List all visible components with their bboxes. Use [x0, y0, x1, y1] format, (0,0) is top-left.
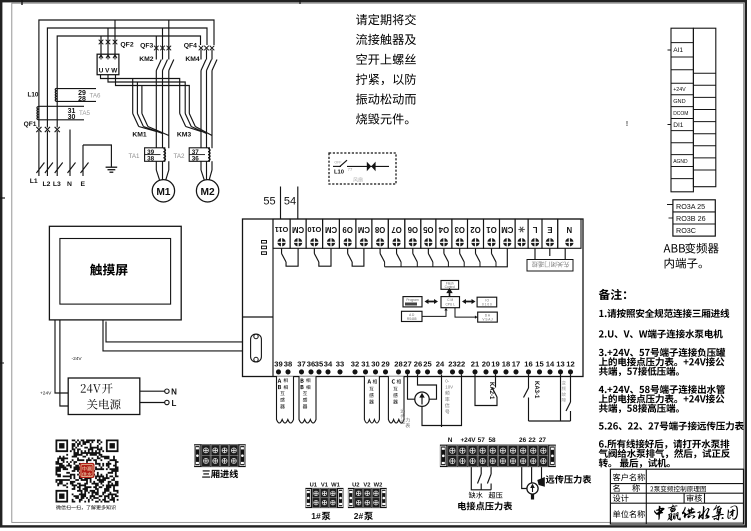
svg-text:W2: W2	[374, 482, 383, 488]
svg-text:+24V: +24V	[40, 391, 52, 397]
svg-text:1#: 1#	[311, 511, 321, 521]
svg-text:L10: L10	[334, 170, 344, 176]
svg-text:CM: CM	[325, 225, 337, 234]
svg-text:W1: W1	[331, 482, 340, 488]
svg-text:31: 31	[361, 360, 370, 369]
svg-text:27: 27	[403, 360, 411, 369]
svg-text:54: 54	[284, 196, 296, 208]
svg-text:25: 25	[423, 360, 432, 369]
svg-text:O9: O9	[342, 225, 353, 234]
svg-text:L: L	[172, 399, 177, 408]
svg-text:DI1: DI1	[673, 122, 684, 129]
svg-text:O7: O7	[391, 225, 401, 234]
svg-text:13: 13	[556, 360, 564, 369]
svg-text:35: 35	[315, 360, 324, 369]
svg-text:E: E	[81, 181, 86, 188]
svg-text:TA6: TA6	[90, 93, 101, 100]
svg-text:U2: U2	[352, 482, 359, 488]
svg-text:V1: V1	[321, 482, 329, 488]
svg-text:TA2: TA2	[174, 153, 185, 160]
svg-text:26: 26	[414, 360, 422, 369]
svg-text:Control: Control	[445, 285, 456, 289]
svg-text:V2: V2	[363, 482, 370, 488]
svg-text:CM: CM	[358, 225, 370, 234]
svg-text:KM3: KM3	[177, 132, 192, 139]
svg-text:U1: U1	[310, 482, 318, 488]
svg-text:KM4: KM4	[185, 56, 200, 63]
svg-text:19: 19	[491, 360, 499, 369]
svg-text:RO3A 25: RO3A 25	[676, 202, 705, 211]
svg-text:RO3B 26: RO3B 26	[676, 214, 706, 223]
svg-text:10V: 10V	[445, 385, 453, 390]
svg-text:M1: M1	[156, 187, 170, 198]
svg-text:U V W: U V W	[99, 68, 118, 75]
svg-text:M2: M2	[201, 187, 215, 198]
svg-text:37: 37	[297, 360, 305, 369]
svg-text:22: 22	[529, 437, 537, 444]
svg-text:30: 30	[68, 114, 76, 121]
svg-text:17: 17	[512, 360, 520, 369]
svg-text:L: L	[532, 225, 537, 234]
svg-text:O1: O1	[486, 225, 497, 234]
svg-text:QF2: QF2	[120, 42, 133, 49]
svg-text:57: 57	[478, 437, 486, 444]
svg-text:KA2-1: KA2-1	[488, 382, 494, 400]
svg-text:L1: L1	[30, 178, 38, 185]
svg-text:CM: CM	[292, 225, 304, 234]
svg-text:AGND: AGND	[673, 159, 688, 165]
svg-text:-24V: -24V	[72, 356, 83, 362]
svg-text:32: 32	[351, 360, 359, 369]
svg-text:DCOM: DCOM	[673, 111, 688, 117]
svg-text:0-: 0-	[445, 379, 449, 384]
svg-text:O11: O11	[275, 225, 288, 234]
svg-text:O8: O8	[374, 225, 385, 234]
svg-text:28: 28	[394, 360, 402, 369]
svg-text:L2: L2	[43, 181, 51, 188]
svg-text:2#: 2#	[354, 511, 364, 521]
svg-text:12: 12	[566, 360, 574, 369]
svg-text:KM2: KM2	[139, 56, 154, 63]
svg-text:CM: CM	[501, 225, 513, 234]
svg-text:34: 34	[324, 360, 333, 369]
svg-text:30: 30	[371, 360, 379, 369]
svg-text:V S A J: V S A J	[482, 318, 493, 322]
svg-text:L10: L10	[28, 92, 39, 99]
svg-text:36: 36	[192, 156, 200, 163]
svg-text:58: 58	[488, 437, 496, 444]
svg-text:18: 18	[502, 360, 510, 369]
svg-text:QF4: QF4	[184, 43, 197, 50]
svg-text:QF3: QF3	[140, 43, 153, 50]
svg-text:38: 38	[284, 360, 292, 369]
svg-text:KM1: KM1	[132, 132, 147, 139]
svg-text:+24V: +24V	[673, 87, 686, 93]
svg-text:AI1: AI1	[673, 47, 683, 54]
svg-text:N: N	[448, 437, 453, 444]
svg-text:N: N	[566, 225, 572, 234]
svg-text:O6: O6	[407, 225, 418, 234]
svg-text:29: 29	[381, 360, 389, 369]
svg-text:N: N	[67, 181, 72, 188]
svg-text:21: 21	[471, 360, 480, 369]
svg-text:E: E	[547, 225, 552, 234]
svg-text:KA3-1: KA3-1	[533, 381, 539, 399]
svg-text:RO3C: RO3C	[676, 226, 696, 235]
svg-text:!: !	[626, 119, 629, 128]
svg-text:16: 16	[524, 360, 532, 369]
svg-text:CPU L: CPU L	[446, 303, 456, 307]
svg-text:33: 33	[336, 360, 344, 369]
svg-text:+24V: +24V	[460, 437, 476, 444]
svg-text:26: 26	[519, 437, 527, 444]
svg-text:20: 20	[482, 360, 490, 369]
svg-text:77: 77	[348, 167, 353, 172]
svg-text:27: 27	[539, 437, 547, 444]
svg-text:QF1: QF1	[24, 121, 37, 128]
svg-text:0 1 0 0: 0 1 0 0	[482, 302, 492, 306]
svg-text:15: 15	[535, 360, 544, 369]
svg-text:N: N	[171, 387, 177, 396]
svg-text:L3: L3	[53, 181, 61, 188]
svg-text:O5: O5	[422, 225, 433, 234]
svg-text:24: 24	[436, 360, 445, 369]
svg-text:23: 23	[448, 360, 456, 369]
svg-text:O3: O3	[454, 225, 465, 234]
svg-text:RS485: RS485	[407, 317, 417, 321]
svg-text:14: 14	[546, 360, 555, 369]
svg-text:OFF: OFF	[334, 160, 342, 164]
svg-text:Program: Program	[406, 298, 419, 302]
svg-text:38: 38	[147, 156, 155, 163]
svg-text:TA1: TA1	[129, 153, 140, 160]
svg-text:O2: O2	[470, 225, 481, 234]
svg-text:22: 22	[457, 360, 465, 369]
svg-text:TA5: TA5	[79, 110, 90, 117]
svg-text:55: 55	[263, 196, 275, 208]
svg-text:C M: C M	[447, 298, 453, 302]
svg-text:39: 39	[274, 360, 282, 369]
svg-text:O4: O4	[438, 225, 449, 234]
svg-text:28: 28	[78, 96, 86, 103]
svg-text:O10: O10	[307, 225, 321, 234]
svg-text:GND: GND	[673, 99, 685, 105]
